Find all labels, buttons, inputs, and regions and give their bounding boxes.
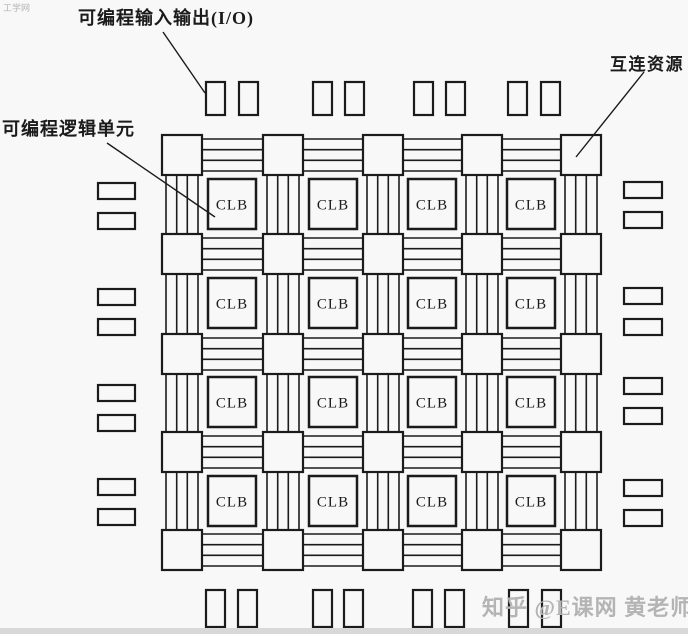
switch-box — [462, 234, 502, 274]
io-block-right — [624, 480, 662, 496]
switch-box — [462, 334, 502, 374]
io-block-right — [624, 319, 662, 335]
io-block-bottom — [344, 590, 363, 627]
io-block-left — [98, 385, 135, 401]
clb-label: CLB — [416, 297, 448, 313]
switch-box — [263, 234, 303, 274]
switch-box — [263, 334, 303, 374]
switch-box — [561, 234, 601, 274]
switch-box — [162, 334, 202, 374]
io-block-bottom — [413, 590, 432, 627]
clb-label: CLB — [515, 396, 547, 412]
clb-label: CLB — [216, 495, 248, 511]
io-block-top — [414, 82, 433, 115]
fpga-diagram: CLBCLBCLBCLBCLBCLBCLBCLBCLBCLBCLBCLBCLBC… — [0, 0, 688, 634]
switch-box — [162, 234, 202, 274]
watermark-bottom-right: 知乎 @E课网 黄老师 — [482, 590, 688, 622]
clb-label: CLB — [216, 198, 248, 214]
clb-label: CLB — [416, 396, 448, 412]
clb-label: CLB — [416, 198, 448, 214]
bottom-gray-bar — [0, 628, 688, 634]
switch-box — [162, 432, 202, 472]
io-block-left — [98, 319, 135, 335]
switch-box — [263, 530, 303, 570]
io-block-top — [541, 82, 560, 115]
io-block-right — [624, 408, 662, 424]
io-block-left — [98, 479, 135, 495]
switch-box — [462, 432, 502, 472]
io-block-top — [239, 82, 258, 115]
interconnect-leader-line — [576, 72, 644, 157]
clb-label: CLB — [515, 198, 547, 214]
io-block-top — [508, 82, 527, 115]
label-programmable-io: 可编程输入输出(I/O) — [78, 4, 254, 30]
label-programmable-logic-cell: 可编程逻辑单元 — [2, 115, 135, 141]
io-block-left — [98, 289, 135, 305]
io-block-right — [624, 212, 662, 228]
label-interconnect-resources: 互连资源 — [610, 50, 684, 75]
io-block-left — [98, 183, 135, 199]
io-block-left — [98, 415, 135, 431]
io-block-bottom — [206, 590, 225, 627]
switch-box — [162, 530, 202, 570]
clb-label: CLB — [317, 297, 349, 313]
watermark-top-left: 工学网 — [3, 1, 30, 14]
switch-box — [561, 530, 601, 570]
switch-box — [162, 135, 202, 175]
io-block-right — [624, 510, 662, 526]
io-block-top — [313, 82, 332, 115]
io-block-left — [98, 213, 135, 229]
io-block-bottom — [445, 590, 464, 627]
clb-label: CLB — [515, 297, 547, 313]
io-block-bottom — [313, 590, 332, 627]
clb-label: CLB — [317, 198, 349, 214]
io-block-bottom — [238, 590, 257, 627]
switch-box — [363, 135, 403, 175]
clb-label: CLB — [416, 495, 448, 511]
clb-label: CLB — [317, 495, 349, 511]
switch-box — [363, 234, 403, 274]
io-block-top — [345, 82, 364, 115]
io-block-left — [98, 509, 135, 525]
fpga-architecture-figure: 工学网 可编程输入输出(I/O) 互连资源 可编程逻辑单元 CLBCLBCLBC… — [0, 0, 688, 634]
switch-box — [263, 432, 303, 472]
switch-box — [462, 530, 502, 570]
io-block-top — [206, 82, 225, 115]
switch-box — [561, 432, 601, 472]
clb-label: CLB — [317, 396, 349, 412]
io-block-right — [624, 182, 662, 198]
switch-box — [363, 334, 403, 374]
clb-label: CLB — [216, 297, 248, 313]
switch-box — [561, 334, 601, 374]
io-block-top — [446, 82, 465, 115]
switch-box — [462, 135, 502, 175]
switch-box — [363, 530, 403, 570]
clb-label: CLB — [216, 396, 248, 412]
switch-box — [263, 135, 303, 175]
switch-box — [363, 432, 403, 472]
switch-box — [561, 135, 601, 175]
io-leader-line — [163, 32, 205, 93]
clb-label: CLB — [515, 495, 547, 511]
io-block-right — [624, 288, 662, 304]
io-block-right — [624, 378, 662, 394]
